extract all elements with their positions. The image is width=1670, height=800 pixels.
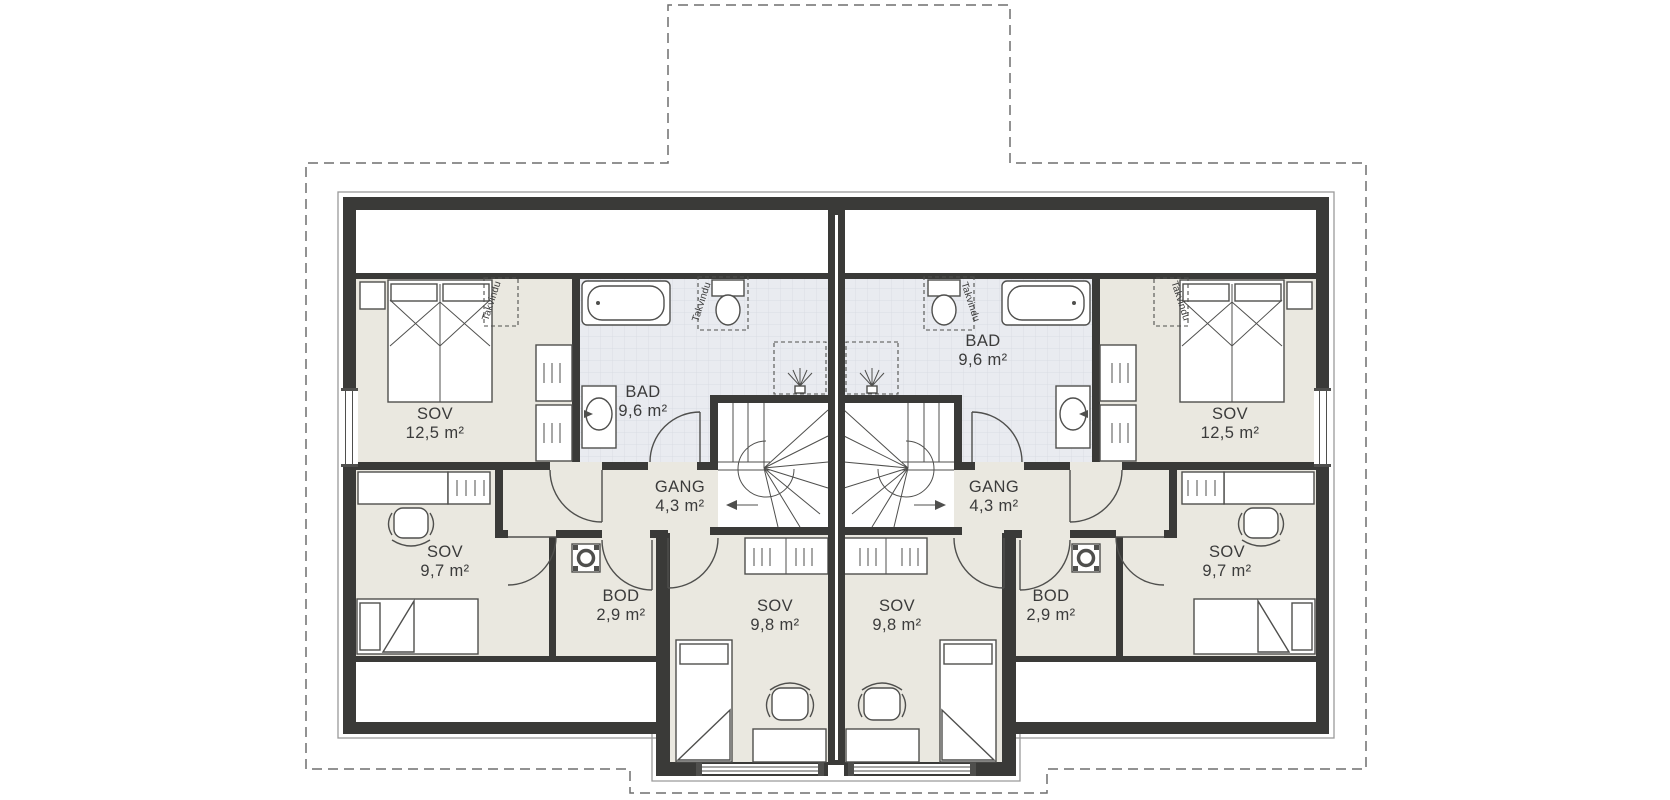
room-label-sov-98-right: SOV9,8 m²	[872, 597, 921, 635]
room-label-sov-97-right: SOV9,7 m²	[1202, 543, 1251, 581]
room-label-bad-left: BAD9,6 m²	[618, 383, 667, 421]
room-label-sov-98-left: SOV9,8 m²	[750, 597, 799, 635]
room-label-sov-97-left: SOV9,7 m²	[420, 543, 469, 581]
party-wall	[828, 197, 845, 765]
floor-plan: SOV12,5 m² BAD9,6 m² GANG4,3 m² SOV9,7 m…	[0, 0, 1670, 800]
room-label-bod-left: BOD2,9 m²	[596, 587, 645, 625]
room-label-gang-right: GANG4,3 m²	[969, 478, 1019, 516]
floor-plan-drawing	[0, 0, 1670, 800]
room-label-sov-125-right: SOV12,5 m²	[1201, 405, 1260, 443]
room-label-bad-right: BAD9,6 m²	[958, 332, 1007, 370]
room-label-sov-125-left: SOV12,5 m²	[406, 405, 465, 443]
room-label-gang-left: GANG4,3 m²	[655, 478, 705, 516]
room-label-bod-right: BOD2,9 m²	[1026, 587, 1075, 625]
